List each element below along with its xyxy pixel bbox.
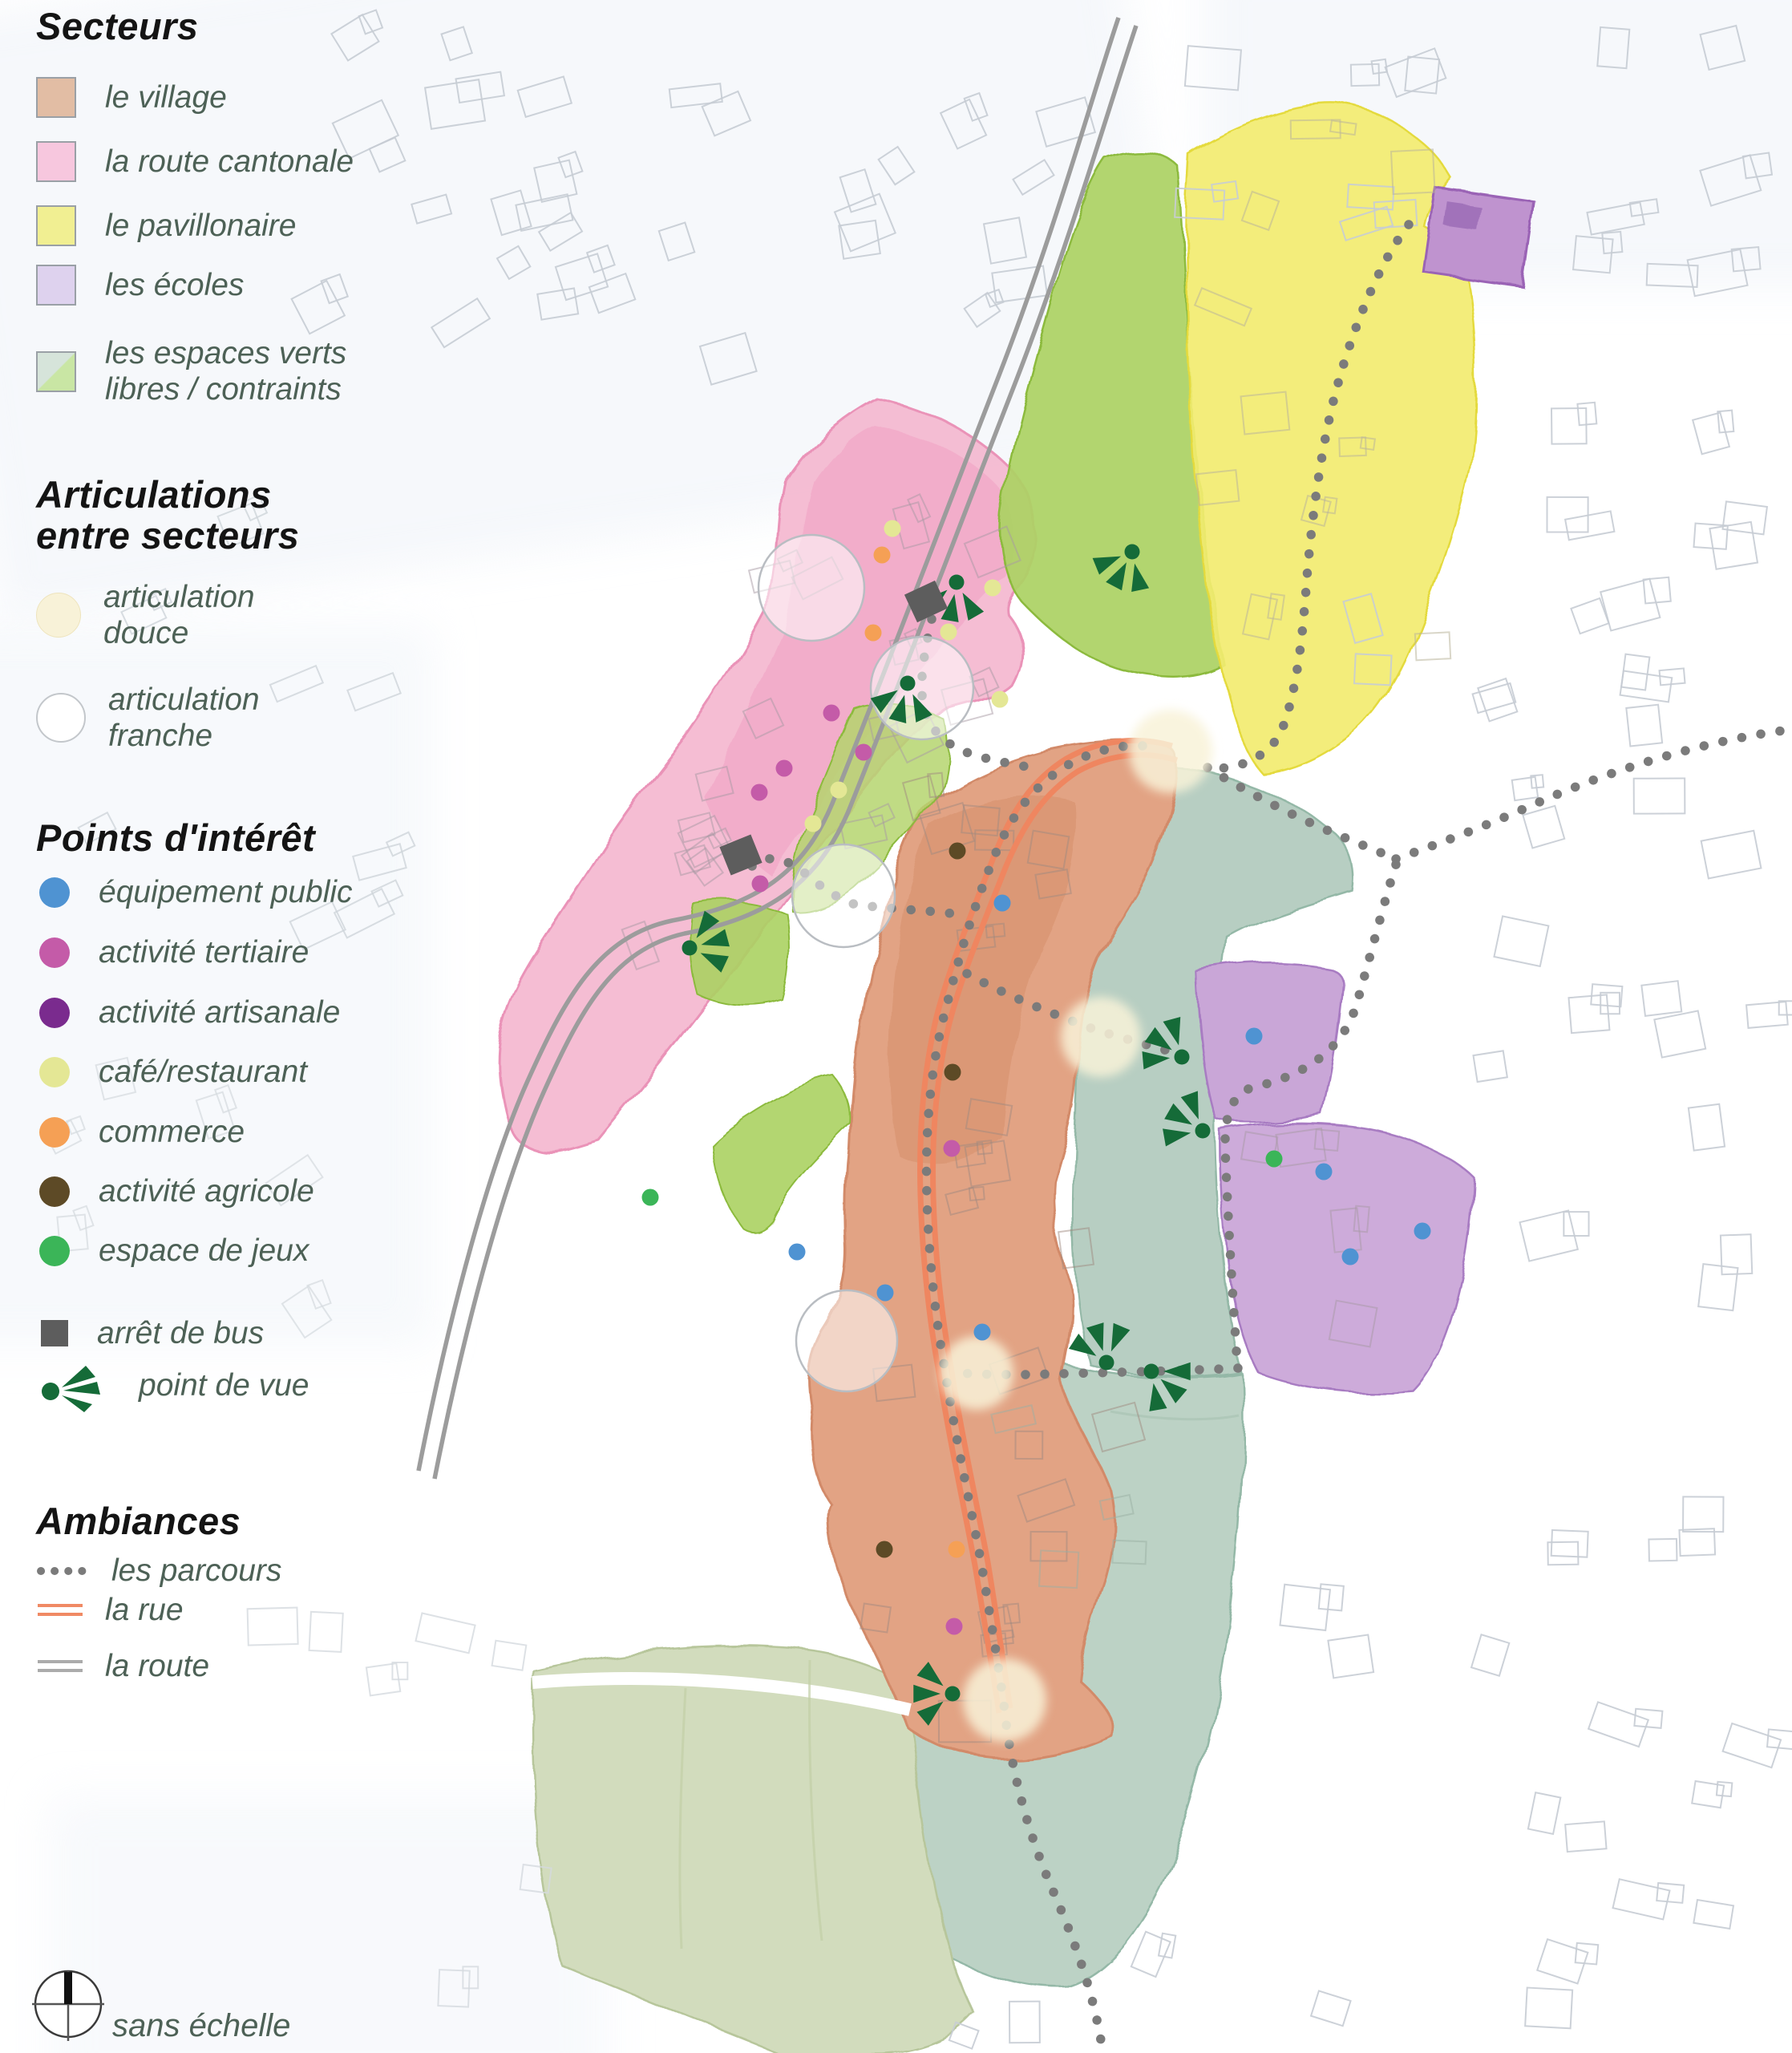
legend-item-articulation-franche: articulation franche	[36, 682, 260, 754]
building-outline	[1717, 1782, 1732, 1796]
building-outline	[1709, 522, 1758, 569]
poi-agricole[interactable]	[945, 1064, 961, 1081]
articulation-douce-circle[interactable]	[940, 1336, 1013, 1410]
articulation-franche-symbol	[36, 693, 86, 743]
jeux-dot	[39, 1236, 70, 1266]
tertiaire-dot	[39, 937, 70, 968]
poi-tertiaire[interactable]	[752, 876, 769, 893]
building-outline	[1537, 1939, 1588, 1983]
legend-title-ambiances: Ambiances	[36, 1501, 241, 1542]
legend-item-ecoles: les écoles	[36, 265, 244, 306]
point-de-vue-symbol	[36, 1359, 116, 1412]
legend-item-label: arrêt de bus	[97, 1315, 264, 1351]
legend-item-point-de-vue: point de vue	[36, 1359, 309, 1412]
building-outline	[248, 1608, 298, 1646]
legend-item-label: articulation franche	[108, 682, 260, 754]
bus-stop-symbol	[41, 1320, 68, 1346]
equipement-dot	[39, 877, 70, 908]
building-outline	[1641, 981, 1681, 1016]
poi-cafe[interactable]	[805, 816, 822, 832]
agricole-dot	[39, 1176, 70, 1207]
legend-item-label: activité agricole	[99, 1173, 314, 1209]
building-outline	[1474, 1051, 1507, 1082]
legend-item-label: activité tertiaire	[99, 934, 309, 970]
articulation-douce-circle[interactable]	[963, 1658, 1046, 1742]
building-outline	[1494, 916, 1548, 966]
poi-tertiaire[interactable]	[944, 1140, 961, 1157]
legend-item-label: articulation douce	[103, 579, 255, 651]
articulation-douce-circle[interactable]	[1061, 997, 1141, 1077]
legend-item-pavillonaire: le pavillonaire	[36, 205, 296, 246]
building-outline	[1626, 705, 1662, 747]
ecoles-swatch	[36, 265, 76, 306]
poi-commerce[interactable]	[949, 1541, 965, 1558]
poi-equipement[interactable]	[1316, 1164, 1333, 1180]
legend-item-artisanale: activité artisanale	[36, 994, 340, 1031]
poi-commerce[interactable]	[874, 547, 891, 564]
legend-item-label: activité artisanale	[99, 994, 340, 1031]
legend-title-secteurs: Secteurs	[36, 6, 199, 47]
poi-tertiaire[interactable]	[946, 1618, 963, 1635]
artisanale-dot	[39, 998, 70, 1028]
parcours-symbol	[36, 1557, 89, 1585]
articulation-douce-circle[interactable]	[1129, 710, 1212, 793]
zone-pavillonaire	[1185, 104, 1475, 775]
building-outline	[1551, 1530, 1588, 1557]
building-outline	[1551, 408, 1587, 444]
building-outline	[1528, 1792, 1560, 1834]
parcours-path	[1396, 730, 1790, 859]
building-outline	[1415, 632, 1450, 660]
poi-cafe[interactable]	[985, 580, 1001, 597]
legend-title-articulations: Articulations entre secteurs	[36, 475, 299, 557]
building-outline	[1634, 1709, 1662, 1728]
legend-title-points: Points d'intérêt	[36, 818, 315, 859]
legend-item-label: point de vue	[139, 1367, 309, 1403]
building-outline	[1311, 1991, 1350, 2027]
legend-item-label: le pavillonaire	[105, 208, 296, 244]
rue-symbol	[38, 1598, 83, 1622]
building-outline	[1280, 1585, 1329, 1630]
building-outline	[1131, 1932, 1171, 1977]
legend-item-agricole: activité agricole	[36, 1173, 314, 1209]
legend-item-commerce: commerce	[36, 1114, 245, 1150]
village-swatch	[36, 77, 76, 118]
poi-cafe[interactable]	[831, 782, 847, 799]
legend-item-label: commerce	[99, 1114, 245, 1150]
building-outline	[1679, 1529, 1715, 1556]
legend-item-label: les parcours	[111, 1553, 281, 1589]
scale-note: sans échelle	[112, 2007, 290, 2044]
building-outline	[1644, 577, 1671, 604]
building-outline	[492, 1641, 527, 1670]
route-cantonale-swatch	[36, 141, 76, 182]
zone-verts-triangle	[712, 1076, 850, 1230]
legend-item-label: la route	[105, 1648, 209, 1684]
building-outline	[1565, 1821, 1606, 1852]
cafe-dot	[39, 1057, 70, 1087]
legend-item-label: espace de jeux	[99, 1233, 309, 1269]
legend-item-label: le village	[105, 79, 227, 115]
legend-item-label: café/restaurant	[99, 1054, 307, 1090]
legend-item-equipement: équipement public	[36, 874, 353, 910]
building-outline	[1471, 1634, 1509, 1675]
building-outline	[1613, 1879, 1670, 1919]
building-outline	[1563, 1212, 1588, 1236]
building-outline	[1547, 497, 1588, 532]
legend-item-rue: la rue	[36, 1592, 184, 1628]
poi-jeux[interactable]	[642, 1189, 659, 1206]
legend-item-parcours: les parcours	[36, 1553, 281, 1589]
building-outline	[1701, 831, 1762, 879]
poi-equipement[interactable]	[877, 1285, 894, 1302]
building-outline	[1565, 511, 1614, 540]
zone-ecoles-centre	[1196, 964, 1342, 1124]
building-outline	[1656, 1883, 1684, 1903]
building-outline	[949, 2023, 979, 2049]
articulation-franche-circle[interactable]	[796, 1290, 897, 1391]
legend-item-articulation-douce: articulation douce	[36, 579, 255, 651]
articulation-franche-circle[interactable]	[792, 844, 895, 947]
articulation-franche-circle[interactable]	[871, 637, 973, 739]
building-outline	[1693, 1900, 1733, 1929]
building-outline	[1600, 993, 1620, 1014]
building-outline	[1634, 778, 1685, 813]
articulation-franche-circle[interactable]	[758, 535, 864, 641]
poi-equipement[interactable]	[1414, 1223, 1431, 1240]
building-outline	[1654, 1010, 1705, 1057]
articulation-douce-symbol	[36, 593, 81, 638]
legend-item-label: les écoles	[105, 267, 244, 303]
poi-tertiaire[interactable]	[823, 705, 840, 722]
espaces-verts-swatch	[36, 351, 76, 392]
legend-item-route-cantonale: la route cantonale	[36, 141, 354, 182]
building-outline	[1648, 1539, 1677, 1561]
legend-item-label: la rue	[105, 1592, 184, 1628]
building-outline	[1009, 2002, 1040, 2043]
building-outline	[415, 1614, 475, 1654]
poi-tertiaire[interactable]	[776, 760, 793, 777]
legend-item-espaces-verts: les espaces verts libres / contraints	[36, 335, 346, 407]
poi-agricole[interactable]	[876, 1541, 893, 1558]
building-outline	[1692, 1781, 1724, 1808]
commerce-dot	[39, 1117, 70, 1148]
poi-equipement[interactable]	[994, 895, 1011, 912]
building-outline	[1523, 806, 1564, 848]
pavillonaire-swatch	[36, 205, 76, 246]
poi-cafe[interactable]	[992, 691, 1009, 708]
legend-item-route: la route	[36, 1648, 209, 1684]
building-outline	[1328, 1634, 1373, 1678]
poi-tertiaire[interactable]	[856, 744, 872, 761]
legend-item-label: les espaces verts libres / contraints	[105, 335, 346, 407]
building-outline	[309, 1612, 343, 1652]
legend-item-jeux: espace de jeux	[36, 1233, 309, 1269]
legend-item-tertiaire: activité tertiaire	[36, 934, 309, 970]
route-symbol	[38, 1654, 83, 1678]
legend-item-label: équipement public	[99, 874, 353, 910]
building-outline	[1698, 1264, 1737, 1310]
poi-cafe[interactable]	[940, 624, 957, 641]
building-outline	[1693, 413, 1729, 455]
poi-jeux[interactable]	[1266, 1151, 1283, 1168]
building-outline	[1683, 1496, 1723, 1532]
poi-equipement[interactable]	[1342, 1249, 1359, 1265]
building-outline	[1723, 501, 1767, 534]
building-outline	[392, 1662, 407, 1679]
poi-commerce[interactable]	[865, 625, 882, 642]
building-outline	[1600, 579, 1660, 631]
poi-tertiaire[interactable]	[751, 784, 768, 801]
legend-item-bus: arrêt de bus	[36, 1315, 264, 1351]
poi-equipement[interactable]	[789, 1244, 806, 1261]
legend-item-cafe: café/restaurant	[36, 1054, 307, 1090]
building-outline	[1159, 1934, 1175, 1958]
urbanism-scheme-page: Secteurs le village la route cantonale l…	[0, 0, 1792, 2053]
poi-equipement[interactable]	[974, 1324, 991, 1341]
poi-agricole[interactable]	[949, 843, 966, 860]
legend-item-village: le village	[36, 77, 227, 118]
poi-equipement[interactable]	[1246, 1028, 1263, 1045]
poi-cafe[interactable]	[884, 520, 901, 537]
building-outline	[1689, 1104, 1725, 1151]
building-outline	[1525, 1987, 1572, 2028]
zone-ecoles-nord	[1424, 188, 1535, 286]
legend-item-label: la route cantonale	[105, 144, 354, 180]
